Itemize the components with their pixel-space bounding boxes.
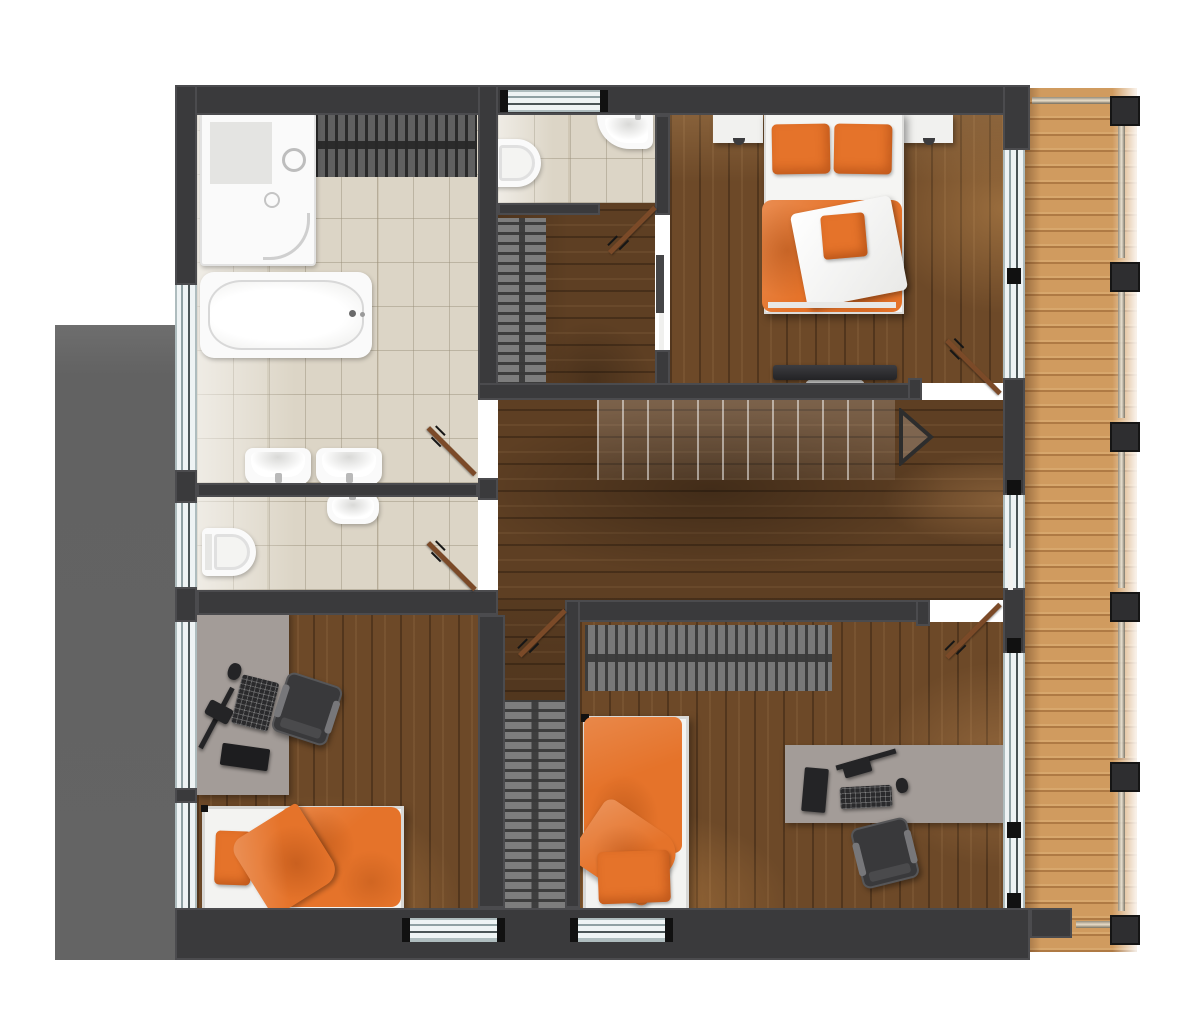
- glass-frame-block: [1007, 638, 1021, 653]
- bathroom-wardrobe: [315, 113, 477, 177]
- railing-post: [1110, 915, 1140, 945]
- glass-wall-hall: [1003, 495, 1025, 588]
- wall-bedroom-left-right: [478, 615, 505, 908]
- washbasin: [316, 448, 382, 485]
- window-frame-cap: [402, 918, 410, 942]
- keyboard-right: [839, 785, 892, 810]
- wall-between-bath-doors: [478, 478, 498, 500]
- shower: [200, 112, 316, 266]
- wall-hallway-top-stub: [908, 378, 922, 400]
- side-roof-panel: [55, 325, 175, 960]
- window-wc: [508, 90, 600, 112]
- bed-left: [202, 806, 404, 914]
- window-frame-cap: [497, 918, 505, 942]
- wall-bedroom-right-left: [565, 600, 580, 908]
- floor-plan-canvas: [0, 0, 1200, 1035]
- pillow: [834, 123, 893, 174]
- glass-wall-master: [1003, 150, 1025, 378]
- bedroom-right-wardrobe: [585, 625, 832, 691]
- stair-direction-arrow: [898, 408, 934, 466]
- bed-right: [583, 716, 689, 920]
- bed-foot-rail: [768, 302, 896, 308]
- sliding-door-track: [1008, 548, 1013, 590]
- wall-bath-divider: [197, 483, 478, 497]
- exterior-wall-right: [1003, 378, 1025, 495]
- wall-bath-wc: [478, 85, 498, 395]
- sliding-door-leaf-master: [656, 255, 664, 313]
- glass-frame-block: [1007, 893, 1021, 908]
- glass-wall-bedroom-right: [1003, 653, 1025, 908]
- balcony-rail-segment: [1118, 292, 1125, 418]
- pillow: [597, 850, 671, 904]
- window-frame-cap: [600, 90, 608, 112]
- cushion: [820, 212, 868, 260]
- railing-post: [1110, 262, 1140, 292]
- balcony-rail-segment: [1118, 792, 1125, 911]
- master-bed: [764, 112, 904, 314]
- window-frame-cap: [500, 90, 508, 112]
- tv-screen: [773, 365, 897, 380]
- window-frame-cap: [570, 918, 578, 942]
- railing-post: [1110, 422, 1140, 452]
- wall-wc-bottom: [498, 203, 600, 215]
- balcony-rail-segment: [1118, 126, 1125, 258]
- wall-hallway-bottom-stub: [916, 600, 930, 626]
- balcony-top-rail: [1032, 97, 1110, 104]
- glass-frame-block: [1007, 268, 1021, 284]
- exterior-wall-left: [175, 85, 197, 285]
- glass-frame-block: [1007, 480, 1021, 495]
- exterior-wall-left: [175, 470, 197, 503]
- window-bathroom-main: [175, 285, 197, 470]
- wall-wc-right: [655, 115, 670, 215]
- balcony-rail-segment: [1118, 452, 1125, 588]
- wall-hallway-top: [478, 383, 922, 400]
- balcony-bottom-rail: [1076, 921, 1112, 928]
- toilet-second-bath: [202, 528, 256, 576]
- exterior-wall-left: [175, 788, 197, 803]
- railing-post: [1110, 592, 1140, 622]
- closet-strip-wardrobe: [505, 700, 565, 942]
- pillow: [772, 123, 831, 174]
- wall-bath2-bedroom: [197, 590, 498, 615]
- bathtub: [200, 272, 372, 358]
- washbasin-second-bath: [327, 494, 379, 524]
- window-bedroom-left-b: [175, 803, 197, 910]
- exterior-wall-bottom-ext: [1030, 908, 1072, 938]
- vestibule-wardrobe: [498, 218, 546, 385]
- window-bedroom-right-bottom: [578, 918, 665, 942]
- washbasin: [245, 448, 311, 485]
- monitor-right: [801, 767, 829, 813]
- staircase: [597, 400, 895, 480]
- balcony-rail-segment: [1118, 622, 1125, 758]
- window-bathroom-second: [175, 503, 197, 587]
- window-frame-cap: [665, 918, 673, 942]
- exterior-wall-left: [175, 587, 197, 622]
- exterior-wall-right: [1003, 85, 1030, 150]
- railing-post: [1110, 762, 1140, 792]
- window-bedroom-left-bottom: [410, 918, 497, 942]
- glass-frame-block: [1007, 822, 1021, 838]
- window-bedroom-left-a: [175, 622, 197, 788]
- railing-post: [1110, 96, 1140, 126]
- wall-hallway-bottom: [565, 600, 930, 622]
- sliding-door-track-master: [659, 313, 664, 351]
